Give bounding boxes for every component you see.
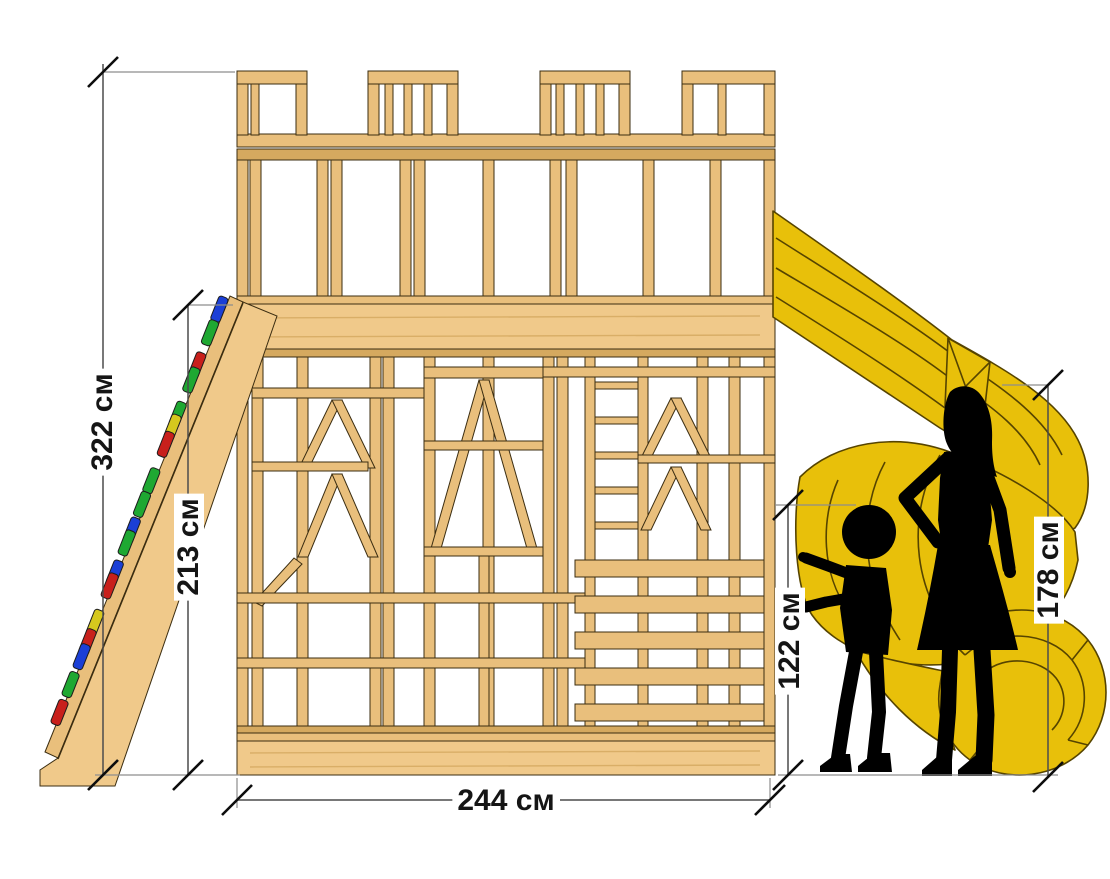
dimension-label-adult-height: 178 см [1034,516,1064,623]
dimension-label-child-height: 122 см [775,587,805,694]
dimension-label-total-height: 322 см [88,368,118,475]
dimension-label-platform-height: 213 см [174,493,204,600]
diagram-graphics [0,0,1110,879]
castle-frame [237,71,775,775]
dimension-label-base-width: 244 см [452,786,559,816]
playground-dimension-diagram: 322 см 213 см 244 см 122 см 178 см [0,0,1110,879]
